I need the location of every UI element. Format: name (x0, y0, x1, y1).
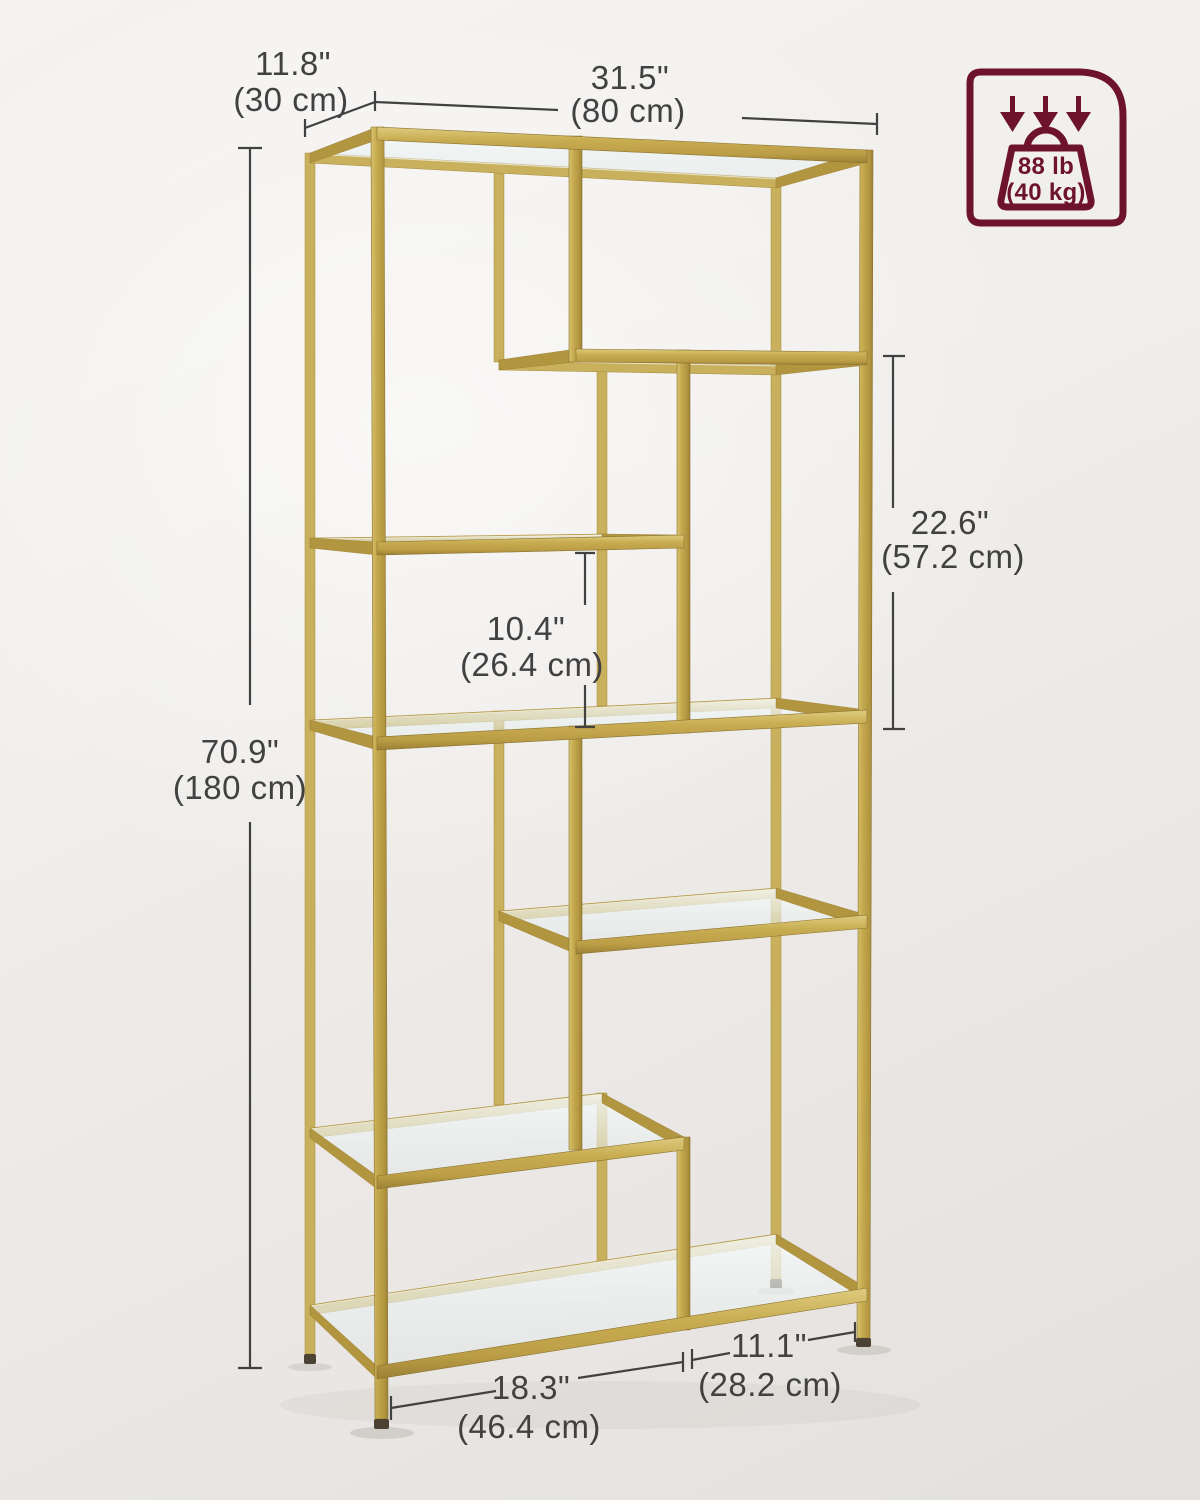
divider-bottom (677, 1137, 690, 1330)
front-rails (377, 127, 867, 1379)
kettlebell-weight-icon: 88 lb (40 kg) (1001, 130, 1091, 207)
product-dimension-image: 11.8" (30 cm) 31.5" (80 cm) 70.9" (180 c… (0, 0, 1200, 1500)
back-left-foot (304, 1354, 316, 1364)
depth-imperial: 11.8" (255, 45, 331, 82)
shelf-6-left (310, 1093, 684, 1189)
bottom-right-imperial: 11.1" (731, 1327, 807, 1364)
front-left-leg (371, 127, 388, 1419)
dimension-depth: 11.8" (30 cm) (233, 45, 375, 137)
dimension-right-compartment: 22.6" (57.2 cm) (881, 356, 1025, 729)
depth-metric: (30 cm) (233, 81, 348, 118)
right-compartment-metric: (57.2 cm) (881, 538, 1025, 575)
bottom-left-imperial: 18.3" (492, 1369, 570, 1406)
badge-load-metric: (40 kg) (1006, 179, 1085, 206)
back-left-leg (305, 153, 315, 1354)
dimension-bottom-right: 11.1" (28.2 cm) (692, 1322, 855, 1403)
divider-lower-left (569, 726, 582, 1150)
height-imperial: 70.9" (201, 733, 279, 770)
bookshelf-illustration (280, 127, 920, 1439)
front-right-foot (856, 1338, 871, 1347)
height-metric: (180 cm) (173, 769, 307, 806)
width-imperial: 31.5" (591, 59, 669, 96)
front-verticals (371, 127, 873, 1429)
dimension-middle-gap: 10.4" (26.4 cm) (460, 553, 604, 727)
back-divider-lower-left (494, 711, 504, 1105)
width-metric: (80 cm) (570, 92, 685, 129)
badge-load-imperial: 88 lb (1018, 153, 1074, 180)
front-left-foot (374, 1419, 389, 1429)
right-compartment-imperial: 22.6" (911, 504, 989, 541)
front-right-leg (857, 150, 873, 1338)
diagram-canvas: 11.8" (30 cm) 31.5" (80 cm) 70.9" (180 c… (0, 0, 1200, 1500)
weight-capacity-badge: 88 lb (40 kg) (970, 72, 1123, 223)
dimension-height: 70.9" (180 cm) (173, 148, 307, 1368)
middle-gap-metric: (26.4 cm) (460, 646, 604, 683)
dimension-width: 31.5" (80 cm) (375, 59, 877, 135)
divider-upper (569, 136, 582, 362)
middle-gap-imperial: 10.4" (487, 610, 565, 647)
back-divider-upper (494, 163, 504, 362)
bottom-left-metric: (46.4 cm) (457, 1408, 601, 1445)
bottom-right-metric: (28.2 cm) (698, 1366, 842, 1403)
